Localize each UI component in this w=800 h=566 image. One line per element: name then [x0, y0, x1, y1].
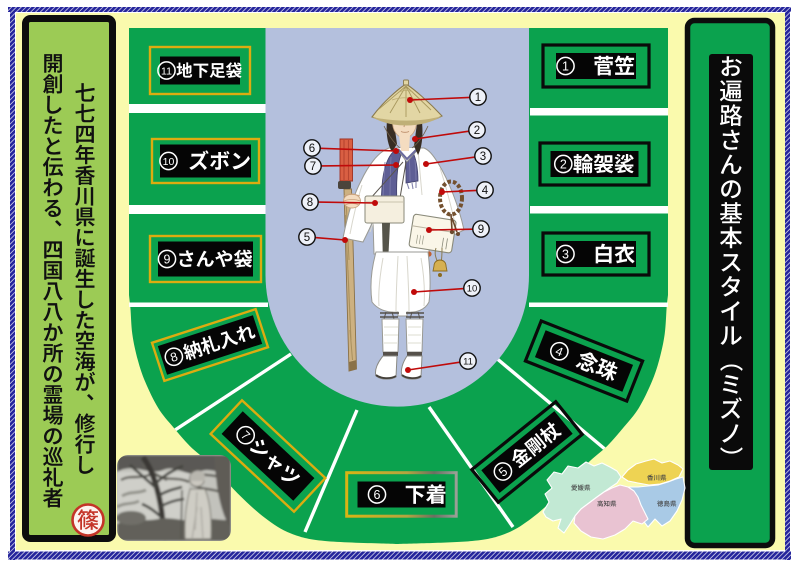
svg-text:9: 9: [164, 253, 171, 267]
svg-text:10: 10: [467, 283, 478, 294]
svg-text:2: 2: [474, 125, 480, 137]
svg-text:2: 2: [560, 158, 567, 172]
svg-text:10: 10: [163, 156, 175, 168]
svg-text:1: 1: [562, 60, 569, 74]
svg-text:1: 1: [475, 92, 481, 104]
svg-text:8: 8: [307, 197, 313, 209]
svg-text:11: 11: [161, 65, 172, 77]
svg-text:9: 9: [478, 224, 484, 236]
svg-text:3: 3: [480, 151, 486, 163]
svg-text:11: 11: [463, 356, 473, 367]
svg-text:4: 4: [482, 185, 489, 197]
svg-text:5: 5: [304, 232, 310, 244]
svg-text:6: 6: [309, 143, 315, 155]
svg-text:7: 7: [310, 161, 316, 173]
svg-text:3: 3: [562, 248, 569, 262]
svg-text:6: 6: [374, 488, 381, 502]
